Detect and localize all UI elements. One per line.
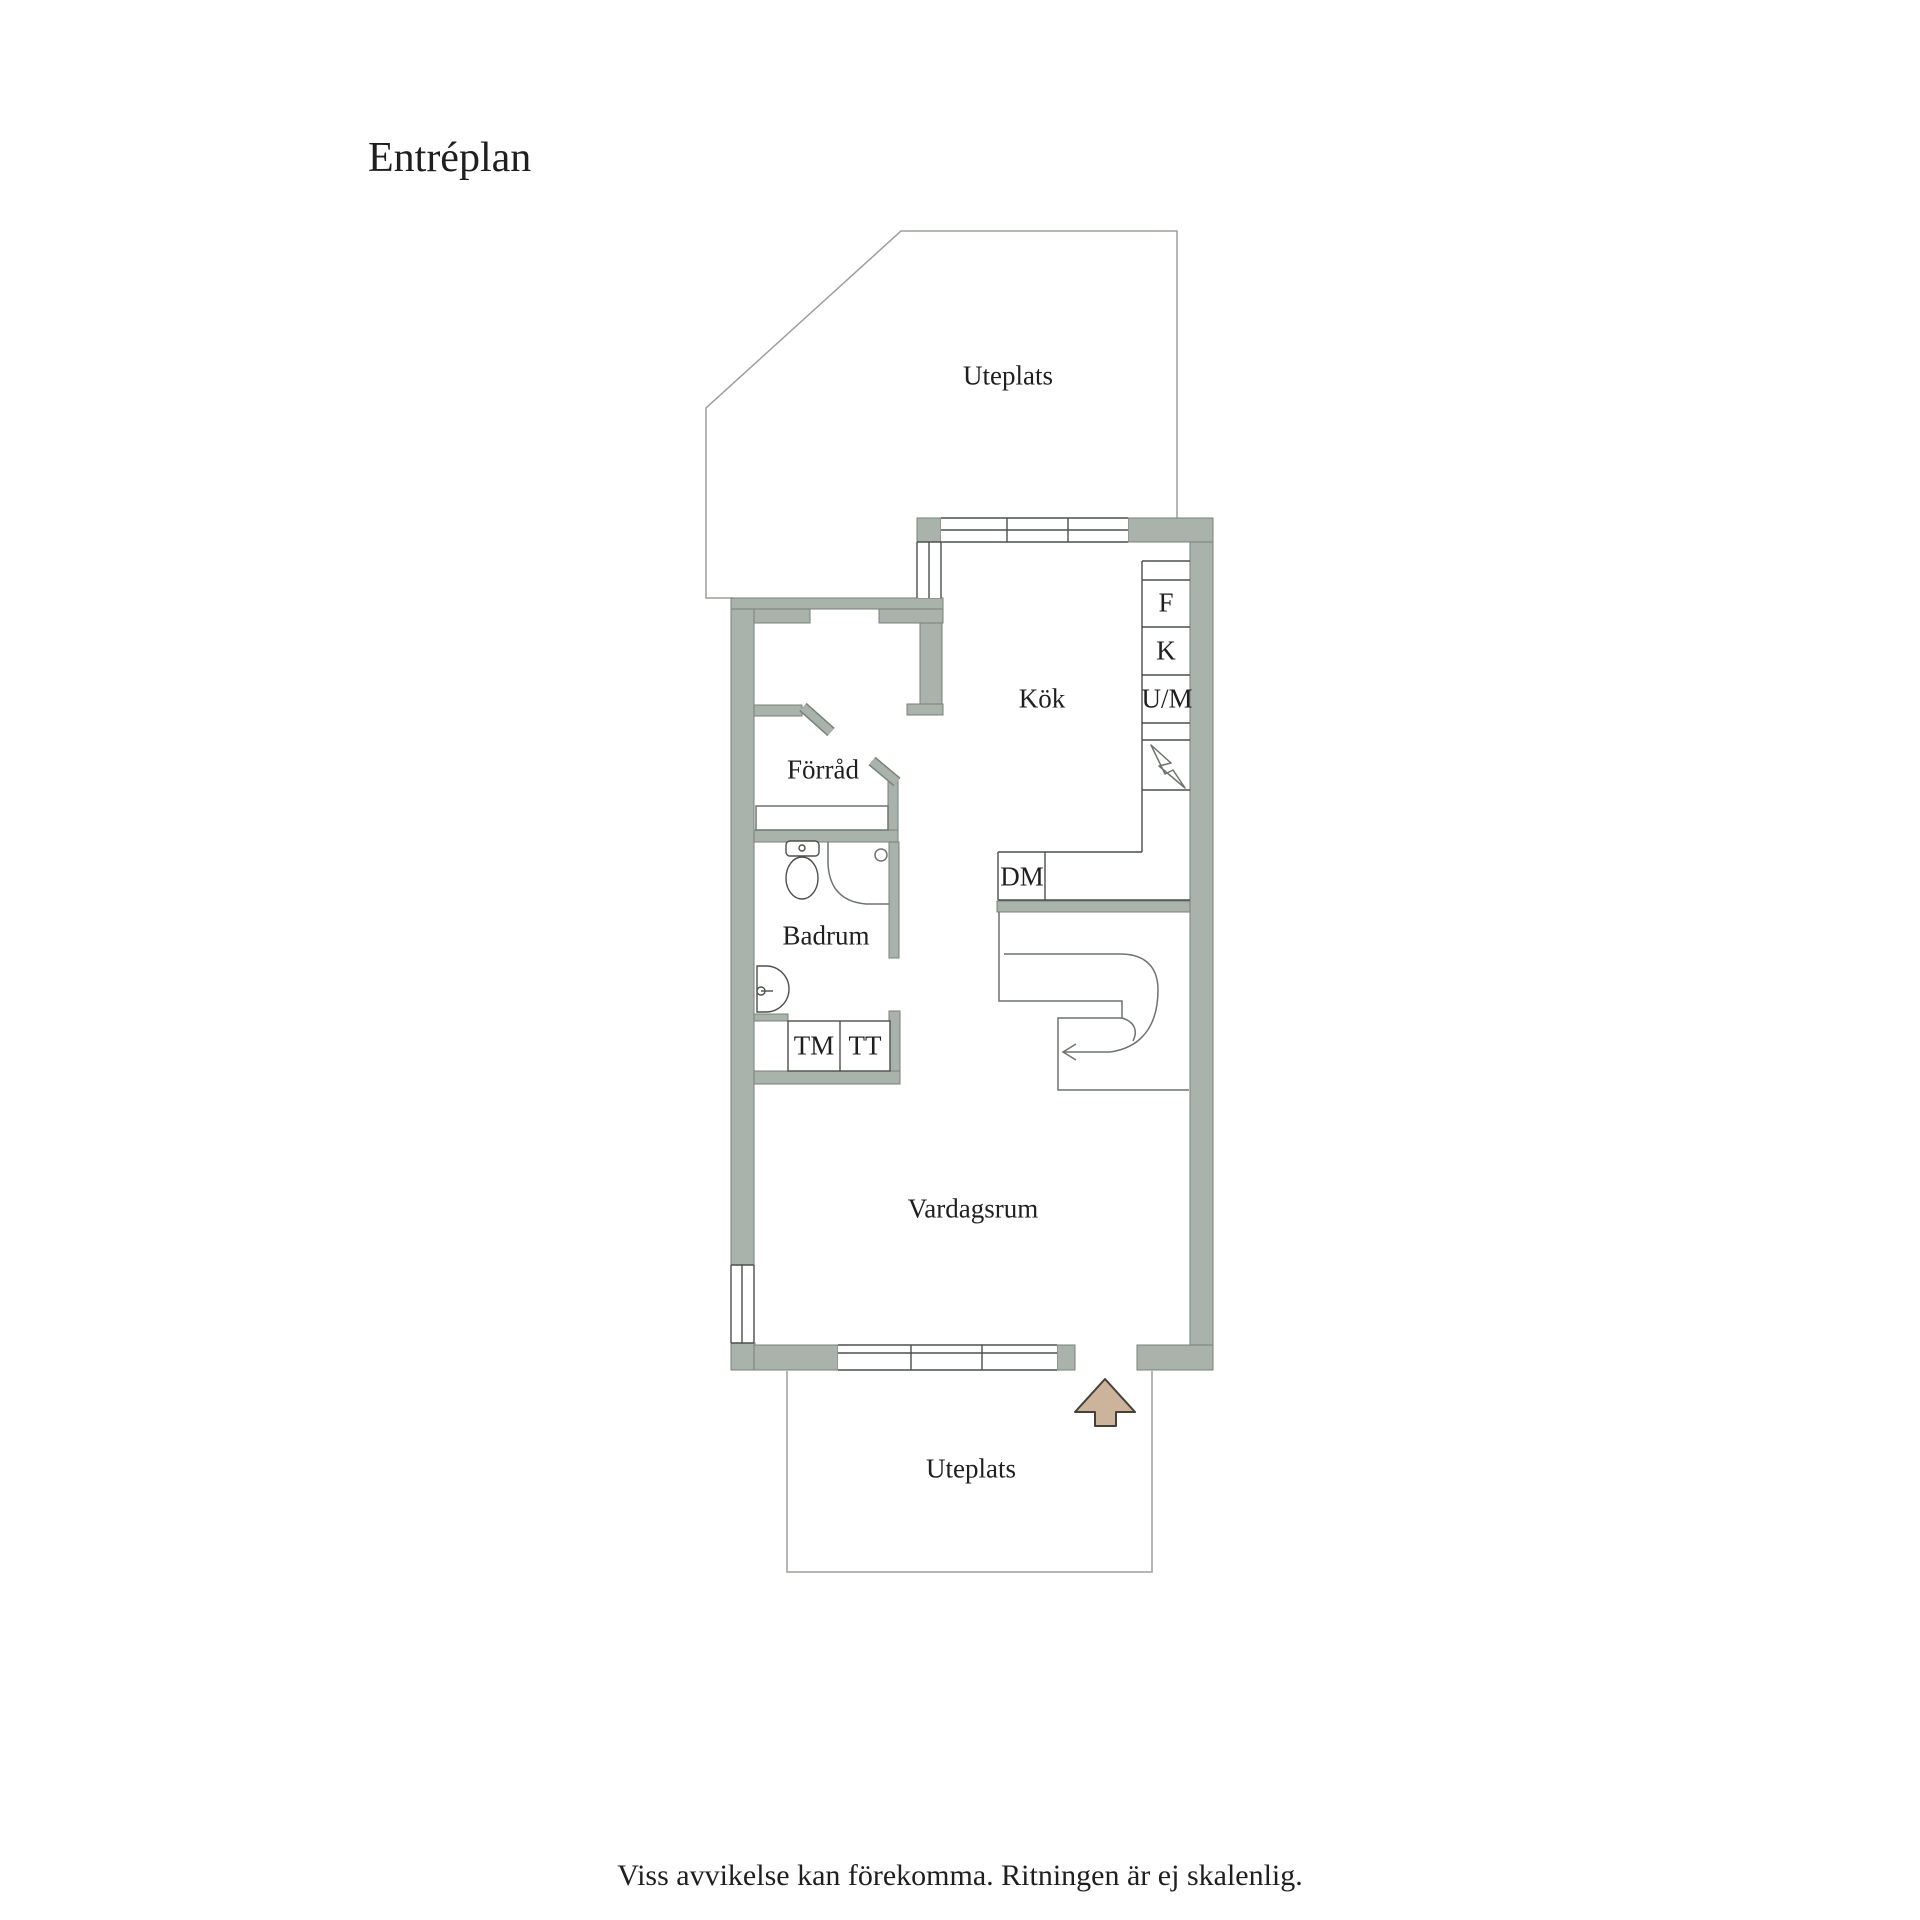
window-kitchen-west: [917, 542, 941, 598]
lightning-bolt-icon: [1151, 745, 1185, 788]
room-label-vardagsrum: Vardagsrum: [908, 1194, 1038, 1225]
room-label-uteplats-top: Uteplats: [963, 361, 1053, 392]
wall-top-right-corner: [1128, 518, 1213, 542]
appliance-label-k: K: [1156, 636, 1176, 667]
wall-kitchen-stair: [997, 901, 1190, 912]
wall-forrad-badrum: [754, 830, 898, 842]
wall-right: [1190, 542, 1213, 1345]
wall-forrad-north: [754, 705, 802, 716]
floorplan-page: Entréplan Uteplats Kök Förråd Badrum Var…: [0, 0, 1920, 1920]
appliance-label-um: U/M: [1141, 684, 1192, 715]
wall-badrum-south-strip: [754, 1014, 788, 1021]
wall-bottom-right-corner: [1137, 1345, 1213, 1370]
window-top-band: [941, 518, 1128, 542]
stairs: [999, 912, 1189, 1090]
wall-bottom-pier: [1057, 1345, 1075, 1370]
entry-direction-arrow-icon: [1075, 1379, 1135, 1426]
wall-patio-lintel: [731, 598, 943, 609]
window-left-wall: [731, 1265, 754, 1343]
appliance-label-f: F: [1158, 588, 1173, 619]
appliance-label-dm: DM: [1000, 862, 1044, 893]
wall-left: [731, 598, 754, 1265]
wall-bottom-left-corner: [731, 1343, 755, 1370]
room-label-kok: Kök: [1019, 684, 1066, 715]
shower-icon: [828, 842, 889, 904]
stairs-boundary: [999, 912, 1189, 1090]
appliance-label-tm: TM: [794, 1031, 835, 1062]
toilet-icon: [786, 841, 819, 899]
room-label-uteplats-bottom: Uteplats: [926, 1454, 1016, 1485]
wall-kitchen-west: [920, 623, 942, 704]
wall-below-tmtt: [754, 1071, 900, 1084]
door-leaf-hall-fill: [872, 761, 897, 782]
wall-top-pillar: [917, 518, 941, 542]
door-leaf-forrad-fill: [803, 707, 831, 732]
sink-icon: [757, 966, 789, 1012]
wall-badrum-east: [889, 842, 899, 958]
floorplan-drawing: [0, 0, 1920, 1920]
appliance-label-tt: TT: [849, 1031, 882, 1062]
page-title: Entréplan: [368, 134, 531, 182]
disclaimer-text: Viss avvikelse kan förekomma. Ritningen …: [617, 1859, 1303, 1893]
wall-bottom-west: [754, 1345, 838, 1370]
room-label-forrad: Förråd: [787, 755, 859, 786]
wall-hall-piece: [888, 779, 898, 832]
stairs-inner-curve: [1122, 1018, 1135, 1041]
room-label-badrum: Badrum: [783, 921, 870, 952]
forrad-closet: [756, 806, 888, 830]
wall-patio-stub-east: [879, 609, 943, 623]
window-bottom-band: [838, 1345, 1057, 1370]
wall-patio-stub-west: [754, 609, 810, 623]
wall-kitchen-door-jamb: [907, 704, 943, 715]
